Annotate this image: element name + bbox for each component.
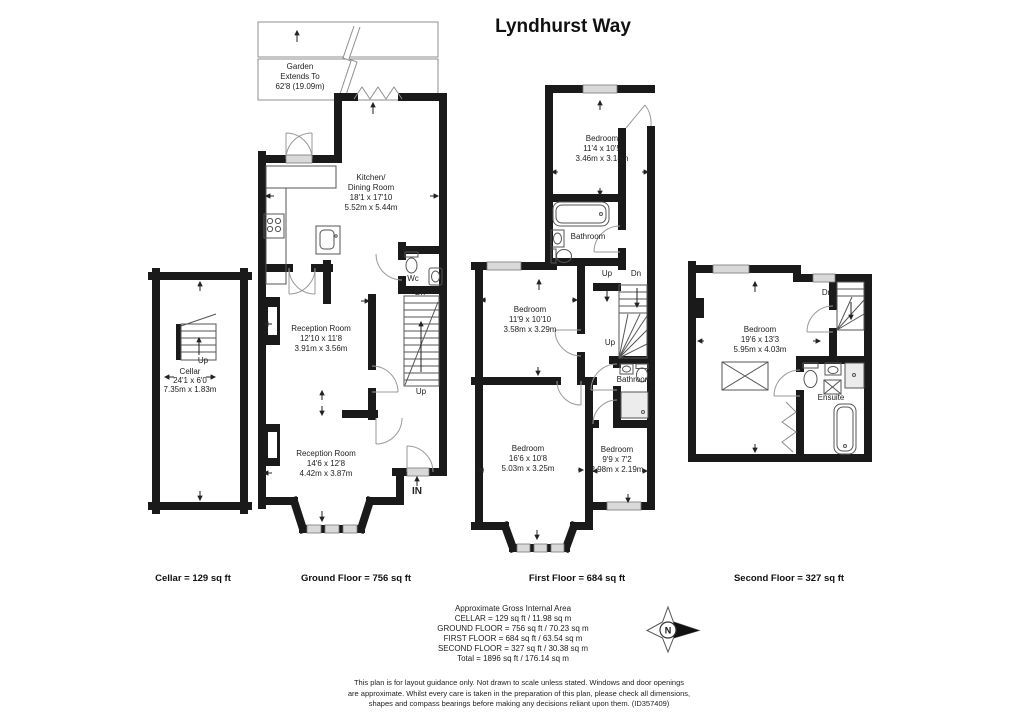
bedroom2-window [487,262,521,270]
room-label-bedroom3: Bedroom 16'6 x 10'8 5.03m x 3.25m [502,444,555,474]
stair-label-dn-second: Dn [822,288,832,298]
room-label-wc: Wc [407,274,419,284]
compass-icon: N [647,607,699,652]
stair-label-dn-ground: Dn [415,288,425,298]
bifold-doors [354,87,402,99]
room-label-bedroom5: Bedroom 19'6 x 13'3 5.95m x 4.03m [734,325,787,355]
compass-north-label: N [665,626,672,636]
floorplan-page: N Lyndhurst Way Garden Extends To 62'8 (… [0,0,1024,723]
bedroom4-window [607,502,641,510]
floor-label-first: First Floor = 684 sq ft [529,574,625,584]
shower-icon [845,363,864,388]
room-label-bedroom2: Bedroom 11'9 x 10'10 3.58m x 3.29m [504,305,557,335]
stair-label-up-winders: Up [605,338,615,348]
landing-window [813,274,835,282]
bedroom5-window [713,265,749,273]
wardrobe-zigzag [782,402,796,452]
stair-label-dn-first: Dn [631,269,641,279]
bedroom1-window [583,85,617,93]
first-stairs [619,285,647,358]
garden-label: Garden Extends To 62'8 (19.09m) [275,62,324,92]
bay-window-first [517,544,530,552]
page-title: Lyndhurst Way [495,22,631,32]
entrance-label: IN [412,487,422,497]
room-label-reception2: Reception Room 14'6 x 12'8 4.42m x 3.87m [296,449,356,479]
second-floor-plan [692,265,868,458]
room-label-bedroom1: Bedroom 11'4 x 10'5 3.46m x 3.18m [576,134,629,164]
room-label-ensuite: Ensuite [818,393,845,403]
bath-icon [553,202,609,226]
front-door-threshold [407,468,429,476]
bay-window [307,525,321,533]
stair-label-up-first: Up [602,269,612,279]
area-summary: Approximate Gross Internal Area CELLAR =… [437,604,588,664]
room-label-bedroom4: Bedroom 9'9 x 7'2 2.98m x 2.19m [591,445,644,475]
floor-label-cellar: Cellar = 129 sq ft [155,574,231,584]
rooflight-icon [722,362,768,390]
second-walls [692,265,868,458]
shower-icon [621,392,648,418]
room-label-cellar: Cellar 24'1 x 6'0 7.35m x 1.83m [164,367,217,394]
room-label-bathroom2: Bathroom [617,375,652,385]
floor-label-ground: Ground Floor = 756 sq ft [301,574,411,584]
stair-label-up-ground: Up [416,387,426,397]
floor-label-second: Second Floor = 327 sq ft [734,574,844,584]
room-label-kitchen: Kitchen/ Dining Room 18'1 x 17'10 5.52m … [345,173,398,213]
stove-icon [264,214,284,238]
area-summary-title: Approximate Gross Internal Area [437,604,588,614]
stair-label-up-cellar: Up [198,356,208,366]
french-door-threshold [286,155,312,163]
room-label-reception1: Reception Room 12'10 x 11'8 3.91m x 3.56… [291,324,351,354]
room-label-bathroom1: Bathroom [571,232,606,242]
disclaimer: This plan is for layout guidance only. N… [348,678,690,710]
